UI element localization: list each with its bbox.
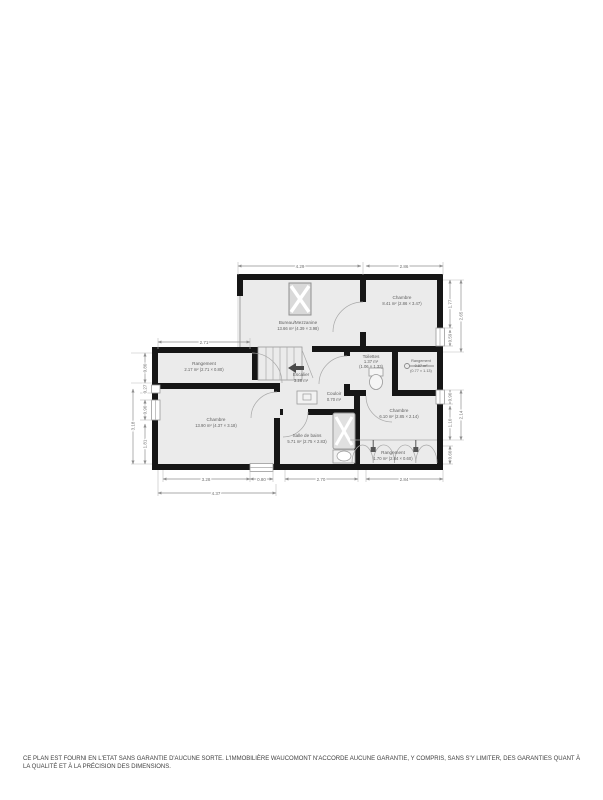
dim-bottom-4: 2.84	[400, 477, 409, 482]
dim-right-1: 1.77	[448, 299, 453, 308]
room-label-chambre-tr: Chambre	[393, 295, 412, 300]
room-detail-salle-de-bains: 5.71 m² (2.75 × 2.83)	[287, 439, 327, 444]
room-detail-rangement-left: 2.17 m² (2.71 × 0.80)	[184, 367, 224, 372]
toilet-icon	[369, 368, 383, 390]
wall-segment	[344, 390, 366, 396]
dim-top-2: 2.86	[400, 264, 409, 269]
bathtub-icon	[333, 413, 355, 449]
room-detail-chambre-left: 13.90 m² (4.37 × 3.18)	[195, 423, 237, 428]
wall-segment	[274, 389, 280, 392]
wall-segment	[392, 390, 443, 396]
dim-right-3: 0.90	[448, 392, 453, 401]
dim-left-4: 1.81	[143, 439, 148, 448]
room-label-rangement-left: Rangement	[192, 361, 216, 366]
wall-segment	[280, 409, 283, 415]
room-label-couloir: Couloir	[327, 391, 342, 396]
wall-segment	[437, 346, 443, 390]
dim-left-3: 0.90	[143, 405, 148, 414]
wall-segment	[252, 347, 258, 380]
wall-segment	[237, 274, 443, 280]
room-label-bureau: Bureau/Mezzanine	[279, 320, 318, 325]
room-label-escalier: Escalier	[293, 372, 310, 377]
sink-icon	[333, 450, 355, 463]
room-area-placard: 0.87 m²	[415, 364, 429, 368]
dim-top-1: 4.29	[296, 264, 305, 269]
dim-left-top: 2.71	[200, 340, 209, 345]
wall-segment	[152, 393, 158, 400]
dim-left-outer: 3.18	[131, 421, 136, 430]
dim-right-outer-2: 2.14	[459, 410, 464, 419]
room-detail-couloir: 0.70 m²	[327, 397, 342, 402]
dim-bottom-3: 2.70	[317, 477, 326, 482]
room-label-chambre-br: Chambre	[390, 408, 409, 413]
wall-segment	[152, 420, 158, 464]
dim-bottom-2: 0.80	[257, 477, 266, 482]
room-dims-placard: (0.77 × 1.13)	[410, 369, 432, 373]
wall-segment	[152, 464, 250, 470]
room-label-rangement-br: Rangement	[381, 450, 405, 455]
room-label-placard: Rangement	[411, 359, 432, 363]
wall-segment	[273, 464, 443, 470]
disclaimer-text: CE PLAN EST FOURNI EN L'ETAT SANS GARANT…	[23, 755, 583, 771]
wall-segment	[360, 274, 366, 302]
dim-right-4: 1.10	[448, 418, 453, 427]
room-detail-escalier: 3.28 m²	[294, 378, 309, 383]
room-label-salle-de-bains: Salle de bains	[293, 433, 323, 438]
room-dims-toilettes: (1.06 × 1.33)	[359, 364, 383, 369]
wall-segment	[437, 404, 443, 470]
wall-segment	[152, 383, 280, 389]
room-detail-rangement-br: 1.70 m² (2.84 × 0.60)	[373, 456, 413, 461]
dim-right-2: 0.59	[448, 333, 453, 342]
dim-left-2: 0.27	[143, 384, 148, 393]
dim-bottom-1: 3.28	[202, 477, 211, 482]
wall-segment	[274, 418, 280, 464]
wall-segment	[437, 274, 443, 328]
room-detail-bureau: 13.66 m² (4.39 × 3.98)	[277, 326, 319, 331]
dim-bottom-outer: 4.37	[212, 491, 221, 496]
wall-segment	[344, 352, 350, 356]
room-label-chambre-left: Chambre	[207, 417, 226, 422]
skylight-icon	[289, 283, 311, 315]
window	[152, 385, 161, 393]
dim-right-outer-1: 2.65	[459, 311, 464, 320]
dim-left-1: 0.80	[143, 363, 148, 372]
wall-segment	[237, 274, 243, 296]
room-detail-chambre-tr: 8.41 m² (2.86 × 3.47)	[382, 301, 422, 306]
room-detail-chambre-br: 6.10 m² (2.85 × 2.14)	[379, 414, 419, 419]
wall-segment	[392, 352, 398, 390]
wall-segment	[152, 347, 258, 353]
wall-segment	[312, 346, 443, 352]
dim-right-5: 0.60	[448, 450, 453, 459]
niche	[297, 391, 317, 404]
floor-plan: Bureau/Mezzanine 13.66 m² (4.39 × 3.98) …	[0, 0, 603, 800]
